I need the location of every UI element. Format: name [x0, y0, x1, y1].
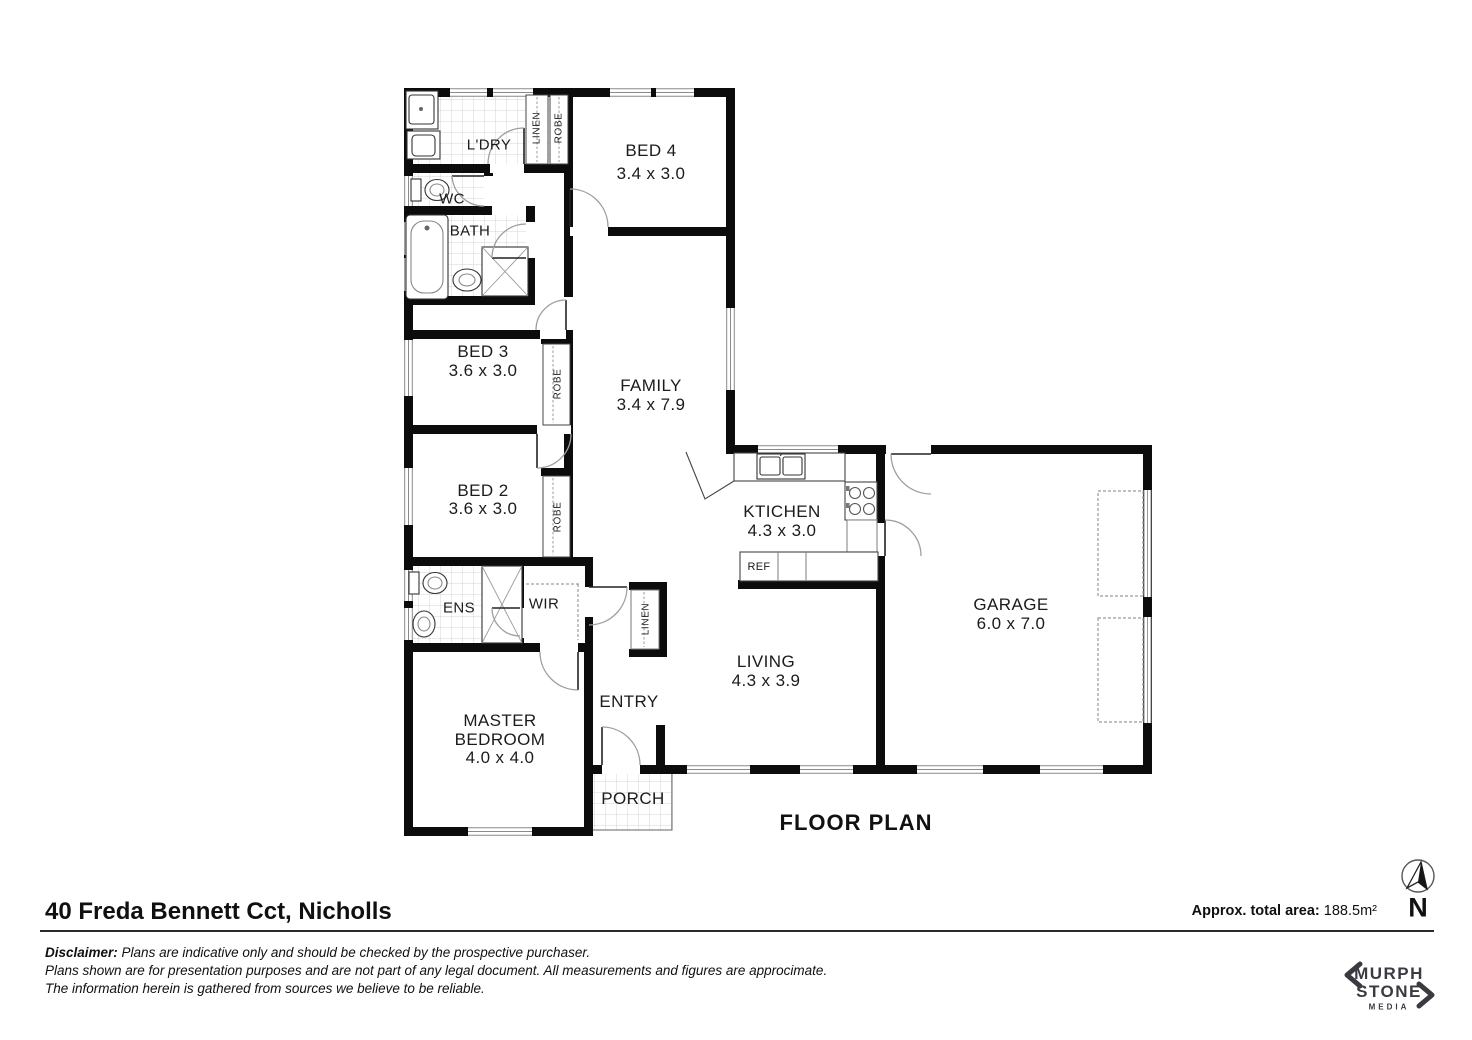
room-dims-bed2: 3.6 x 3.0 [449, 499, 518, 519]
disclaimer-line-3: The information herein is gathered from … [45, 980, 827, 998]
disclaimer-line-1: Disclaimer: Plans are indicative only an… [45, 944, 827, 962]
room-label-bed3: BED 3 [457, 342, 508, 362]
footer-divider [40, 930, 1434, 932]
closet-label-robe-bed3: ROBE [553, 369, 564, 400]
room-label-porch: PORCH [601, 789, 664, 809]
room-label-bath: BATH [450, 223, 491, 240]
room-label-garage: GARAGE [973, 595, 1048, 615]
appliance-label-ref: REF [748, 561, 771, 573]
logo-word-murph: MURPH [1354, 964, 1424, 984]
property-address: 40 Freda Bennett Cct, Nicholls [45, 898, 392, 926]
room-dims-master: 4.0 x 4.0 [466, 748, 535, 768]
logo-word-media: MEDIA [1369, 1003, 1410, 1012]
room-dims-family: 3.4 x 7.9 [617, 395, 686, 415]
total-area: Approx. total area: 188.5m² [1192, 903, 1377, 919]
disclaimer-text: Disclaimer: Plans are indicative only an… [45, 944, 827, 998]
disclaimer-line-2: Plans shown are for presentation purpose… [45, 962, 827, 980]
room-dims-garage: 6.0 x 7.0 [977, 614, 1046, 634]
north-compass-icon [1402, 860, 1434, 892]
room-label-ldry: L'DRY [467, 137, 512, 154]
room-dims-bed4: 3.4 x 3.0 [617, 164, 686, 184]
closet-label-robe-top: ROBE [554, 113, 565, 144]
north-letter: N [1408, 893, 1428, 924]
room-label-entry: ENTRY [599, 692, 658, 712]
room-dims-kitchen: 4.3 x 3.0 [748, 521, 817, 541]
room-label-bed4: BED 4 [625, 141, 676, 161]
floor-plan-page: L'DRY BED 4 3.4 x 3.0 WC BATH BED 3 3.6 … [0, 0, 1472, 1040]
room-label-family: FAMILY [620, 376, 682, 396]
room-label-ens: ENS [443, 600, 475, 617]
room-label-bed2: BED 2 [457, 481, 508, 501]
plan-title: FLOOR PLAN [780, 810, 933, 836]
room-label-wir: WIR [529, 596, 559, 613]
room-label-master-1: MASTER [463, 711, 536, 731]
total-area-value: 188.5m² [1324, 903, 1377, 919]
total-area-label: Approx. total area: [1192, 903, 1320, 919]
room-label-master-2: BEDROOM [455, 730, 546, 750]
room-label-kitchen: KTICHEN [743, 502, 820, 522]
room-dims-bed3: 3.6 x 3.0 [449, 361, 518, 381]
logo-word-stone: STONE [1356, 982, 1422, 1002]
room-label-wc: WC [439, 191, 465, 208]
closet-label-linen-entry: LINEN [641, 603, 652, 635]
room-dims-living: 4.3 x 3.9 [732, 671, 801, 691]
closet-label-robe-bed2: ROBE [553, 502, 564, 533]
closet-label-linen-top: LINEN [532, 112, 543, 144]
room-label-living: LIVING [737, 652, 795, 672]
floor-plan-drawing [0, 0, 1472, 1040]
